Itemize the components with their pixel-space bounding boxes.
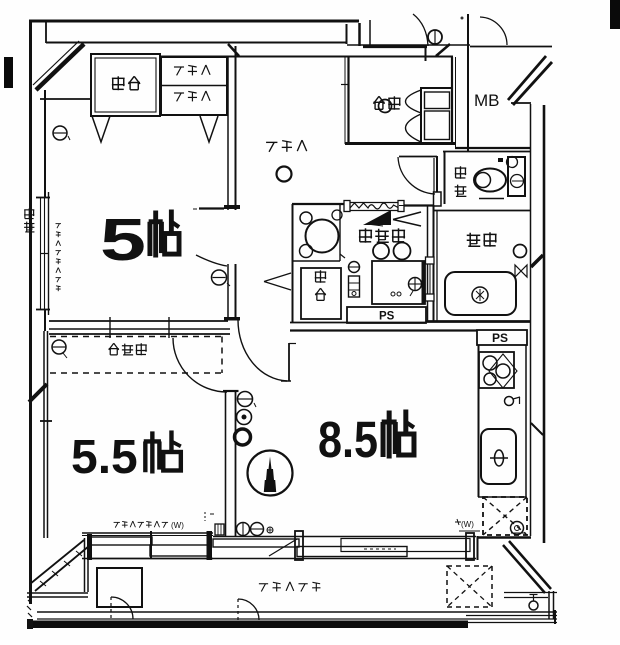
svg-text:MB: MB (474, 91, 500, 110)
svg-text:8.5: 8.5 (318, 411, 378, 468)
svg-text:PS: PS (492, 331, 508, 345)
svg-text:5: 5 (100, 207, 146, 273)
svg-text:(W): (W) (461, 520, 474, 529)
svg-text:5.5: 5.5 (71, 431, 138, 484)
svg-text:PS: PS (379, 311, 395, 323)
svg-text:(W): (W) (171, 521, 184, 530)
